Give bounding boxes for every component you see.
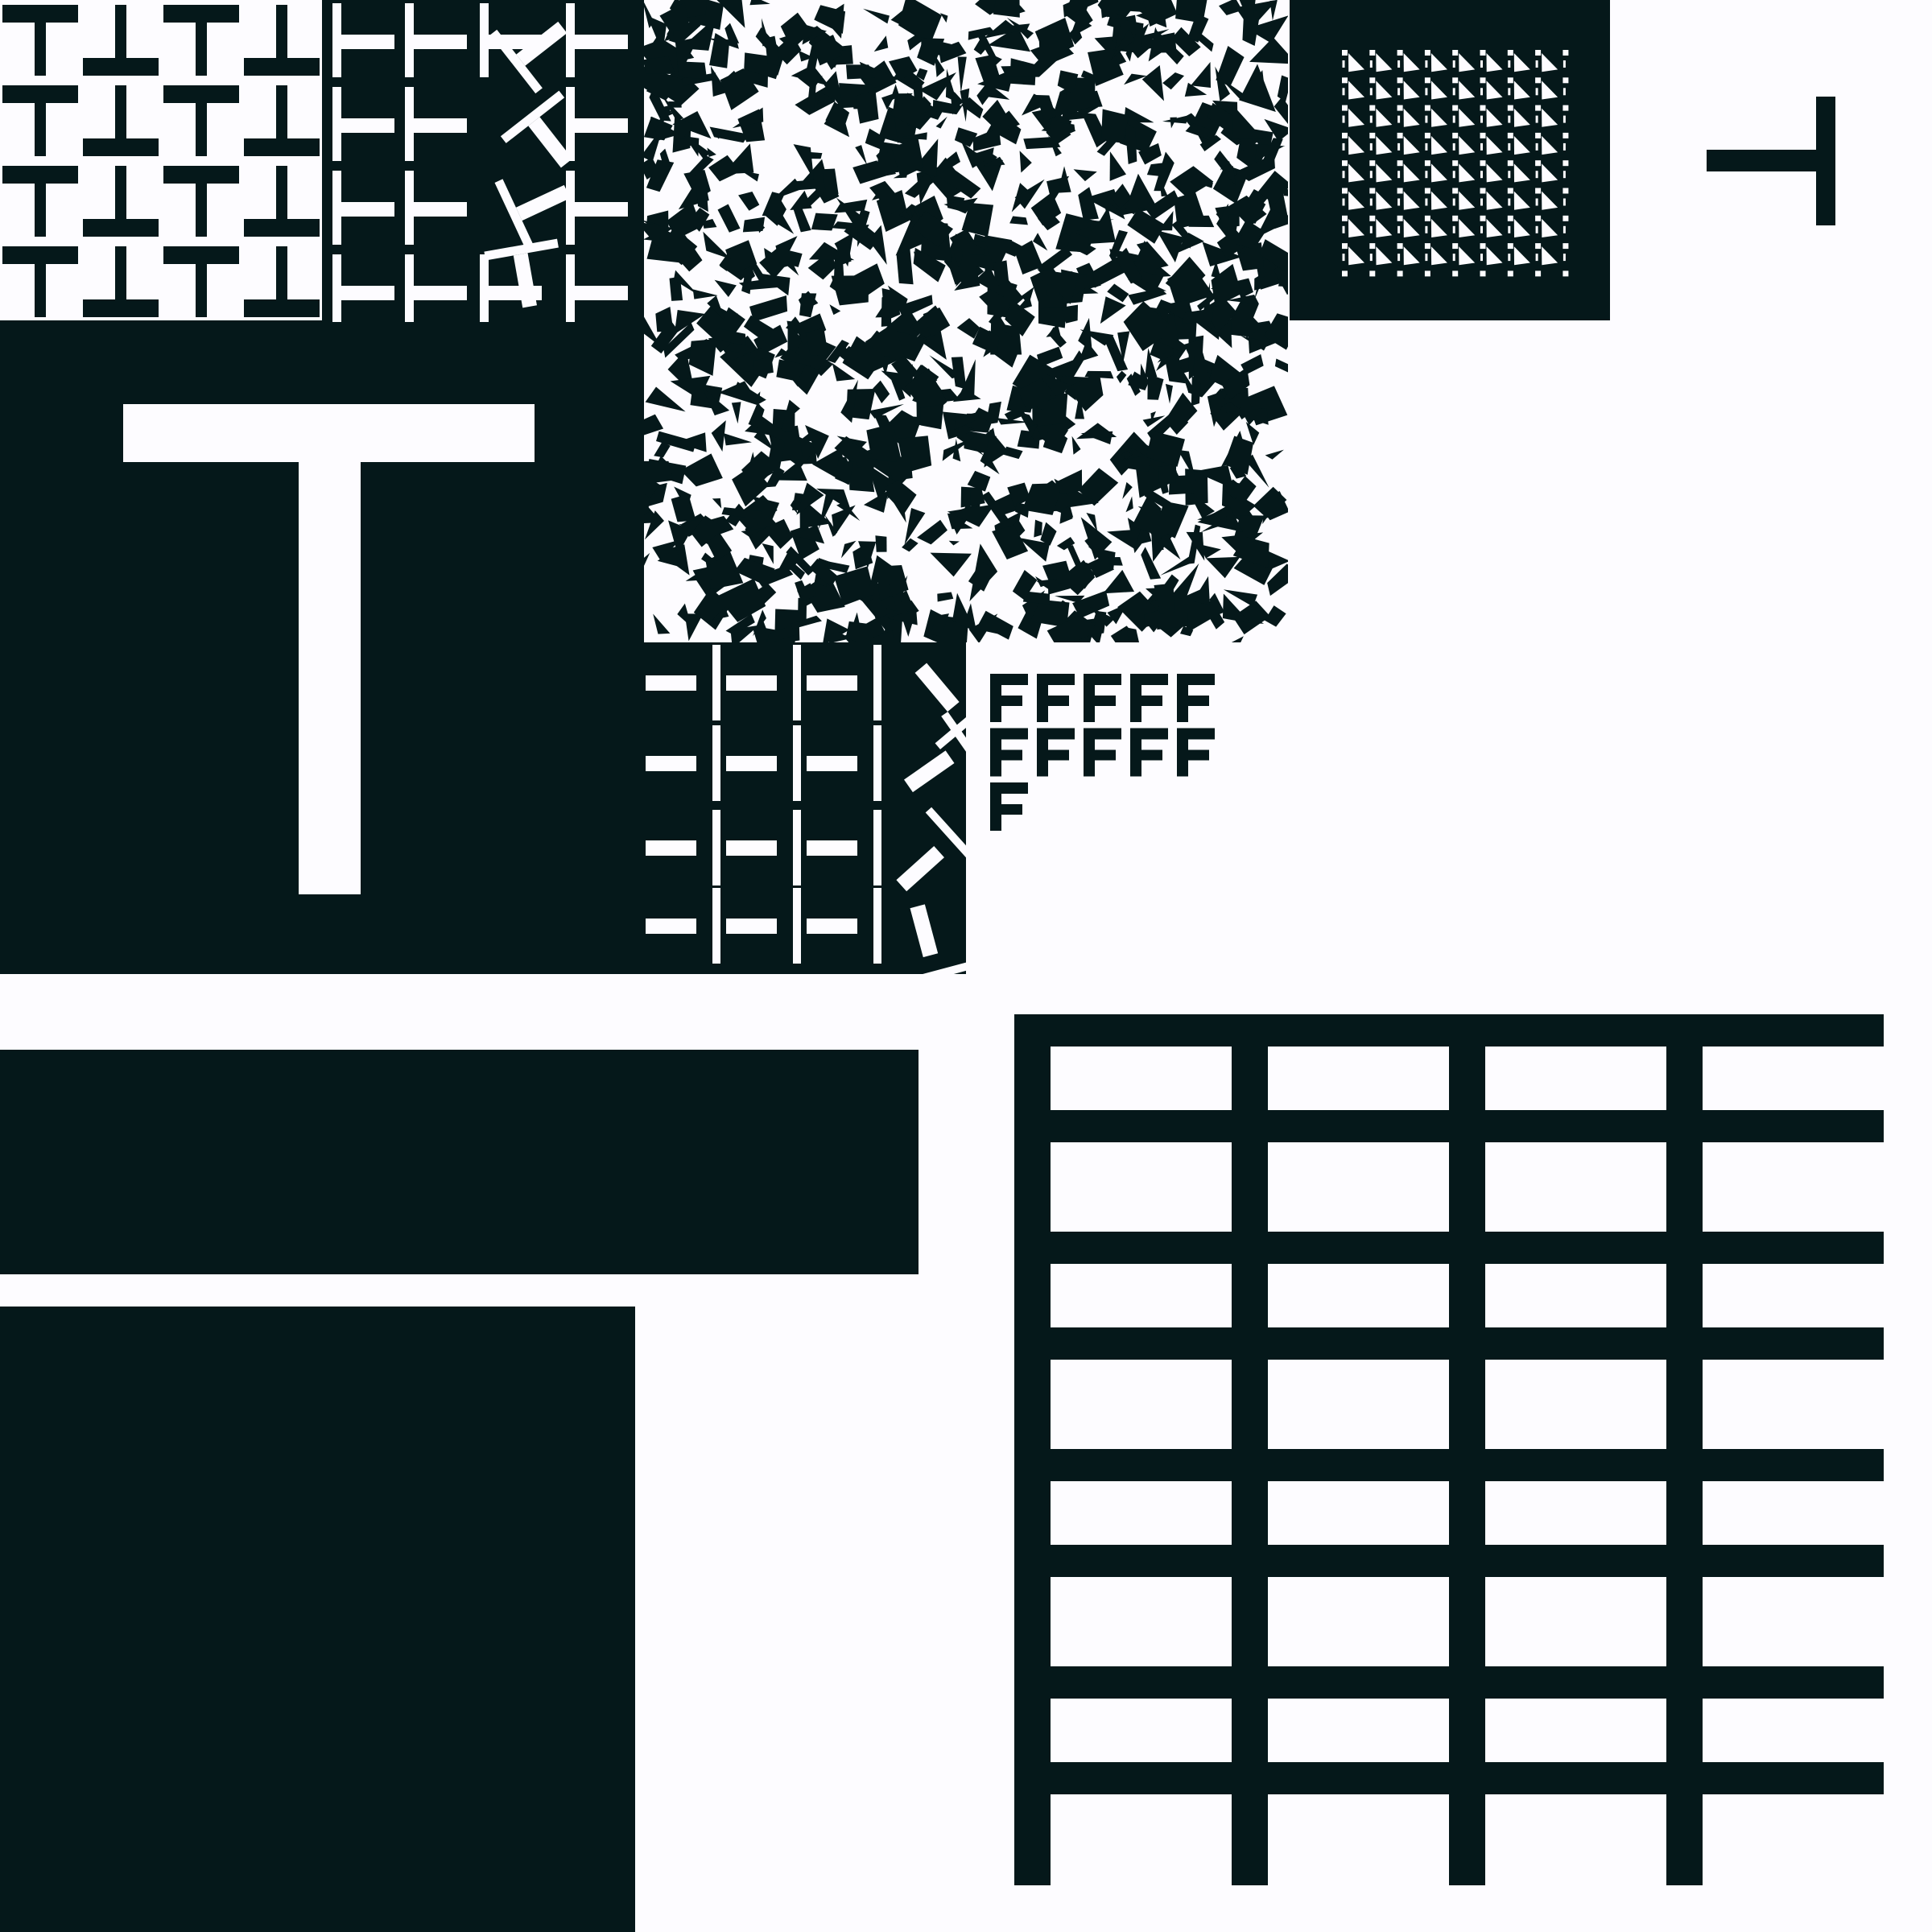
- horizontal-bar: [0, 1050, 919, 1274]
- artwork-canvas: [0, 0, 1932, 1932]
- triangle-tile-bg: [1290, 0, 1610, 320]
- glyph-composition: [0, 0, 1932, 1932]
- bottom-left-block: [0, 1307, 635, 1932]
